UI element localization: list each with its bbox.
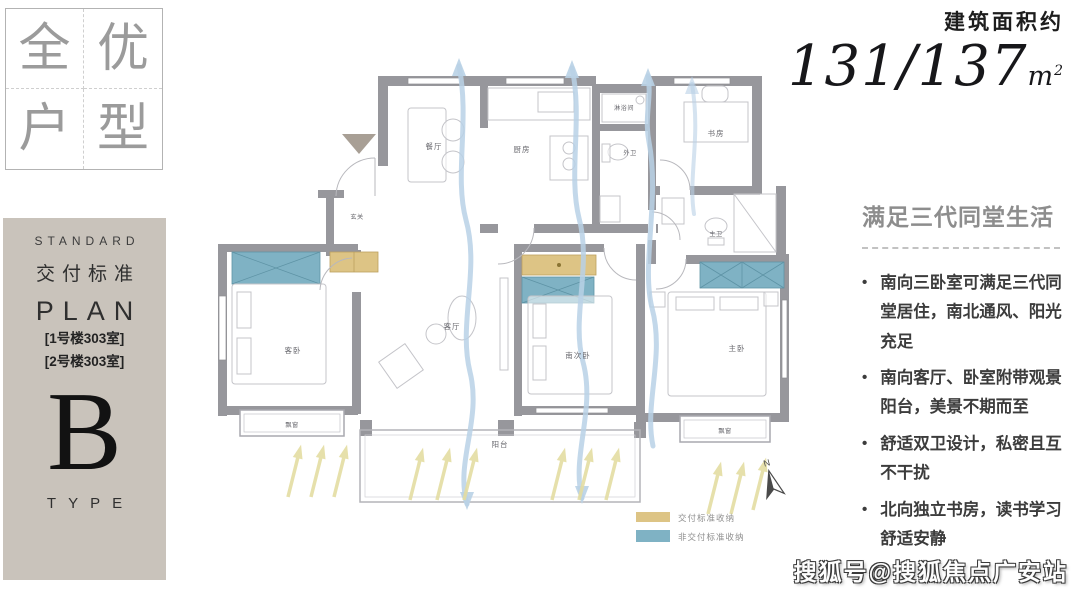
legend-swatch-nonstandard xyxy=(636,530,670,542)
room-label-living: 客厅 xyxy=(444,321,461,331)
highlight-text: 南向三卧室可满足三代同堂居住，南北通风、阳光充足 xyxy=(880,269,1066,357)
list-item: •舒适双卫设计，私密且互不干扰 xyxy=(862,430,1066,489)
badge-char: 优 xyxy=(84,9,162,89)
room-label-guest-bath: 外卫 xyxy=(623,149,636,157)
room-label-kitchen: 厨房 xyxy=(514,144,531,154)
room-label-master-bed: 主卧 xyxy=(729,343,746,353)
banner-type-letter: B xyxy=(47,375,122,489)
entrance-marker-icon xyxy=(342,134,376,154)
page: 全 优 户 型 STANDARD 交付标准 PLAN [1号楼303室] [2号… xyxy=(0,0,1080,594)
room-label-guest-bed: 客卧 xyxy=(285,345,302,355)
banner-type-label: TYPE xyxy=(35,495,134,512)
badge-char: 全 xyxy=(6,9,84,89)
list-item: •南向三卧室可满足三代同堂居住，南北通风、阳光充足 xyxy=(862,269,1066,357)
area-number: 131/137 xyxy=(788,34,1028,99)
floor-plan: 餐厅 厨房 淋浴间 外卫 书房 主卫 玄关 客厅 客卧 南次卧 主卧 阳台 飘窗… xyxy=(195,45,810,555)
highlights-panel: 满足三代同堂生活 •南向三卧室可满足三代同堂居住，南北通风、阳光充足 •南向客厅… xyxy=(862,198,1066,561)
bullet-dot-icon: • xyxy=(862,269,867,357)
area-unit: m2 xyxy=(1027,61,1064,92)
bullet-dot-icon: • xyxy=(862,364,867,423)
banner-plan-label: PLAN xyxy=(27,296,143,327)
highlights-list: •南向三卧室可满足三代同堂居住，南北通风、阳光充足 •南向客厅、卧室附带观景阳台… xyxy=(862,269,1066,554)
list-item: •南向客厅、卧室附带观景阳台，美景不期而至 xyxy=(862,364,1066,423)
standard-plan-banner: STANDARD 交付标准 PLAN [1号楼303室] [2号楼303室] B… xyxy=(3,218,166,580)
banner-room-1: [1号楼303室] xyxy=(45,329,125,350)
area-info: 建筑面积约 131/137m2 xyxy=(788,6,1064,97)
watermark: 搜狐号@搜狐焦点广安站 xyxy=(794,553,1068,587)
room-label-dining: 餐厅 xyxy=(426,142,443,151)
compass-north-label: N xyxy=(762,457,771,468)
legend-label-standard: 交付标准收纳 xyxy=(678,513,735,523)
bullet-dot-icon: • xyxy=(862,430,867,489)
list-item: •北向独立书房，读书学习舒适安静 xyxy=(862,496,1066,555)
badge-char: 户 xyxy=(6,89,84,169)
dashed-divider xyxy=(862,247,1060,249)
plan-legend: 交付标准收纳 非交付标准收纳 xyxy=(636,512,745,542)
sunlight-arrows xyxy=(283,443,771,515)
highlight-text: 南向客厅、卧室附带观景阳台，美景不期而至 xyxy=(880,364,1066,423)
room-label-balcony: 阳台 xyxy=(492,439,509,449)
room-label-shower: 淋浴间 xyxy=(614,104,634,112)
room-label-south-bed: 南次卧 xyxy=(565,350,591,360)
room-label-entry: 玄关 xyxy=(350,213,363,221)
room-label-bay-right: 飘窗 xyxy=(718,427,731,435)
area-label: 建筑面积约 xyxy=(788,6,1064,36)
room-label-study: 书房 xyxy=(708,128,725,138)
highlights-title: 满足三代同堂生活 xyxy=(862,198,1066,232)
highlight-text: 北向独立书房，读书学习舒适安静 xyxy=(880,496,1066,555)
room-label-bay-left: 飘窗 xyxy=(285,421,298,429)
area-value: 131/137m2 xyxy=(788,38,1064,97)
legend-label-nonstandard: 非交付标准收纳 xyxy=(678,532,745,542)
highlight-text: 舒适双卫设计，私密且互不干扰 xyxy=(880,430,1066,489)
banner-standard-label: STANDARD xyxy=(29,234,139,248)
room-label-master-bath: 主卫 xyxy=(709,230,722,238)
banner-delivery-label: 交付标准 xyxy=(29,259,140,286)
storage-standard-gold xyxy=(330,252,596,275)
quality-badge: 全 优 户 型 xyxy=(5,8,163,170)
badge-char: 型 xyxy=(84,89,162,169)
legend-swatch-standard xyxy=(636,512,670,522)
bullet-dot-icon: • xyxy=(862,496,867,555)
